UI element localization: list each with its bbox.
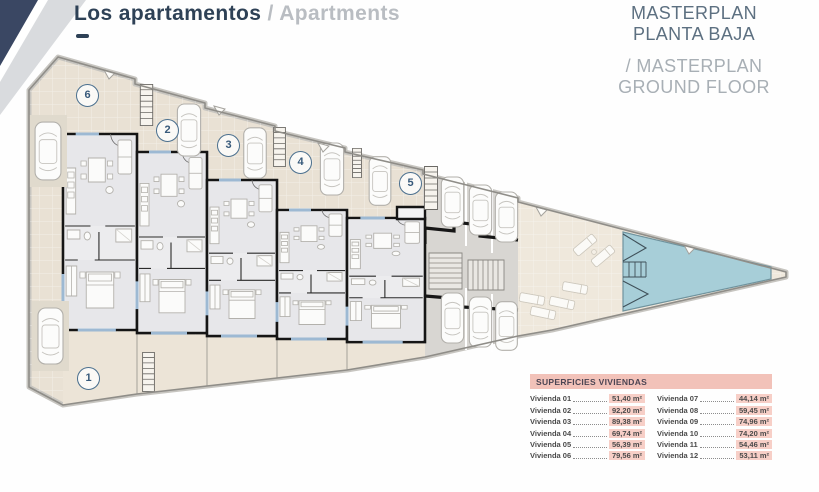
row-label: Vivienda 01 (530, 394, 571, 403)
row-label: Vivienda 03 (530, 417, 571, 426)
row-value: 69,74 m² (609, 429, 645, 438)
table-row: Vivienda 1074,20 m² (657, 429, 772, 438)
row-label: Vivienda 05 (530, 440, 571, 449)
unit-marker-2: 2 (156, 119, 179, 142)
ladder-icon (353, 148, 362, 177)
row-label: Vivienda 12 (657, 451, 698, 460)
subtitle-en-line1: / MASTERPLAN (596, 56, 792, 77)
car-icon (469, 297, 491, 347)
masterplan-subtitle: MASTERPLAN PLANTA BAJA / MASTERPLAN GROU… (596, 3, 792, 98)
unit-marker-1: 1 (77, 367, 100, 390)
row-dots (573, 447, 607, 448)
unit5-entry (397, 207, 425, 219)
table-row: Vivienda 0389,38 m² (530, 417, 645, 426)
row-label: Vivienda 09 (657, 417, 698, 426)
car-icon (38, 308, 63, 364)
ladder-icon (143, 352, 155, 391)
row-dots (573, 436, 607, 437)
car-icon (441, 177, 463, 227)
surfaces-table-header: SUPERFICIES VIVIENDAS (530, 374, 772, 389)
page-title-es: Los apartamentos (74, 2, 261, 25)
row-dots (573, 401, 607, 402)
surfaces-column-right: Vivienda 0744,14 m² Vivienda 0859,45 m² … (657, 392, 772, 460)
unit-marker-6: 6 (76, 84, 99, 107)
row-value: 79,56 m² (609, 451, 645, 460)
row-dots (700, 424, 734, 425)
row-dots (700, 401, 734, 402)
unit-marker-5: 5 (399, 172, 422, 195)
table-row: Vivienda 1154,46 m² (657, 440, 772, 449)
row-label: Vivienda 11 (657, 440, 698, 449)
row-dots (573, 424, 607, 425)
row-dots (700, 447, 734, 448)
subtitle-es-line2: PLANTA BAJA (596, 24, 792, 45)
page-title: Los apartamentos / Apartments (74, 2, 400, 26)
table-row: Vivienda 0151,40 m² (530, 394, 645, 403)
row-dots (700, 413, 734, 414)
unit-module-1 (63, 134, 137, 330)
row-dots (700, 458, 734, 459)
row-value: 74,96 m² (736, 417, 772, 426)
row-label: Vivienda 06 (530, 451, 571, 460)
table-row: Vivienda 0556,39 m² (530, 440, 645, 449)
row-value: 89,38 m² (609, 417, 645, 426)
unit-marker-4: 4 (289, 151, 312, 174)
row-label: Vivienda 02 (530, 406, 571, 415)
row-value: 59,45 m² (736, 406, 772, 415)
car-icon (441, 293, 463, 343)
table-row: Vivienda 0859,45 m² (657, 406, 772, 415)
unit-module-5 (347, 218, 425, 342)
car-icon (496, 302, 518, 351)
masterplan-page: Los apartamentos / Apartments MASTERPLAN… (0, 0, 819, 492)
car-icon (244, 128, 267, 178)
row-value: 56,39 m² (609, 440, 645, 449)
title-dash (76, 34, 89, 38)
car-icon (469, 185, 491, 235)
row-value: 51,40 m² (609, 394, 645, 403)
ladder-icon (425, 167, 438, 210)
row-dots (573, 458, 607, 459)
car-icon (495, 192, 517, 242)
surfaces-column-left: Vivienda 0151,40 m² Vivienda 0292,20 m² … (530, 392, 645, 460)
unit-module-2 (137, 152, 207, 333)
car-icon (177, 104, 200, 156)
unit-module-4 (277, 210, 347, 339)
table-row: Vivienda 0292,20 m² (530, 406, 645, 415)
subtitle-en-line2: GROUND FLOOR (596, 77, 792, 98)
unit-marker-3: 3 (217, 134, 240, 157)
page-title-en: / Apartments (268, 2, 400, 25)
row-label: Vivienda 08 (657, 406, 698, 415)
surfaces-table: SUPERFICIES VIVIENDAS Vivienda 0151,40 m… (530, 374, 772, 460)
car-icon (369, 157, 391, 206)
row-value: 74,20 m² (736, 429, 772, 438)
table-row: Vivienda 1253,11 m² (657, 451, 772, 460)
subtitle-es-line1: MASTERPLAN (596, 3, 792, 24)
row-label: Vivienda 07 (657, 394, 698, 403)
row-value: 53,11 m² (736, 451, 772, 460)
table-row: Vivienda 0744,14 m² (657, 394, 772, 403)
row-value: 54,46 m² (736, 440, 772, 449)
table-row: Vivienda 0974,96 m² (657, 417, 772, 426)
table-row: Vivienda 0469,74 m² (530, 429, 645, 438)
row-value: 44,14 m² (736, 394, 772, 403)
row-label: Vivienda 10 (657, 429, 698, 438)
row-value: 92,20 m² (609, 406, 645, 415)
row-dots (700, 436, 734, 437)
row-label: Vivienda 04 (530, 429, 571, 438)
table-row: Vivienda 0679,56 m² (530, 451, 645, 460)
row-dots (573, 413, 607, 414)
ladder-icon (140, 84, 152, 125)
unit-module-3 (207, 180, 277, 336)
car-icon (35, 122, 61, 180)
